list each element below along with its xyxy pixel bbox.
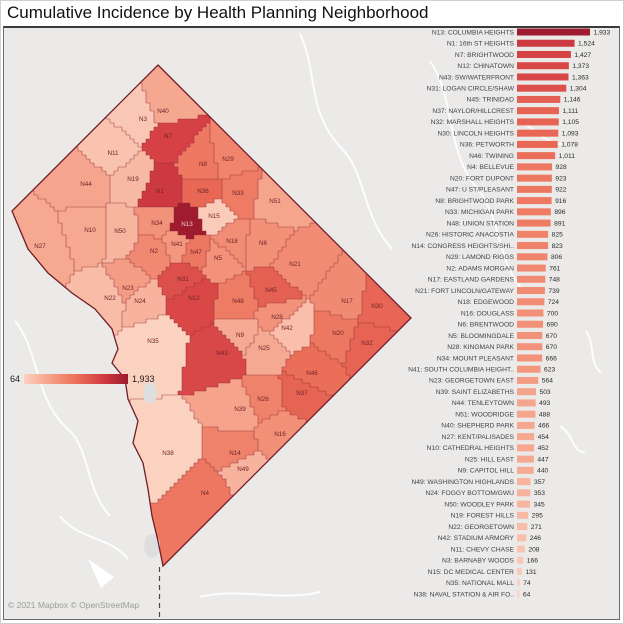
- bar-value: 724: [548, 299, 559, 306]
- bar-label: N47: U ST/PLEASANT: [446, 187, 514, 194]
- map-region-N51[interactable]: [254, 63, 414, 231]
- bar-label: N25: HILL EAST: [465, 456, 514, 463]
- bar-N47[interactable]: [517, 186, 552, 193]
- bar-value: 74: [523, 580, 531, 587]
- bar-N37[interactable]: [517, 107, 559, 114]
- bar-N33[interactable]: [517, 208, 551, 215]
- bar-N4[interactable]: [517, 163, 552, 170]
- bar-value: 1,373: [572, 63, 589, 70]
- bar-label: N2: ADAMS MORGAN: [446, 265, 514, 272]
- bar-N20[interactable]: [517, 175, 552, 182]
- map-label-N30: N30: [371, 303, 383, 310]
- bar-value: 503: [539, 389, 550, 396]
- bar-N40[interactable]: [517, 422, 535, 429]
- bar-value: 1,111: [562, 108, 578, 115]
- map-label-N5: N5: [214, 255, 223, 262]
- bar-label: N18: EDGEWOOD: [458, 299, 515, 306]
- map-label-N19: N19: [127, 176, 139, 183]
- map-label-N37: N37: [296, 390, 308, 397]
- map-label-N4: N4: [201, 490, 210, 497]
- map-label-N20: N20: [332, 330, 344, 337]
- bar-label: N32: MARSHALL HEIGHTS: [431, 119, 515, 126]
- bar-value: 466: [538, 423, 549, 430]
- map-label-N9: N9: [236, 332, 245, 339]
- bar-label: N28: KINGMAN PARK: [447, 344, 514, 351]
- bar-N48[interactable]: [517, 220, 551, 227]
- map-label-N12: N12: [188, 295, 200, 302]
- river-island: [143, 382, 157, 404]
- map-label-N29: N29: [222, 156, 234, 163]
- bar-N41[interactable]: [517, 366, 541, 373]
- bar-label: N33: MICHIGAN PARK: [445, 209, 515, 216]
- map-label-N13: N13: [181, 221, 193, 228]
- bar-N26[interactable]: [517, 231, 548, 238]
- bar-N31[interactable]: [517, 85, 566, 92]
- bar-label: N40: SHEPHERD PARK: [441, 423, 514, 430]
- bar-label: N19: FOREST HILLS: [451, 513, 515, 520]
- bar-label: N50: WOODLEY PARK: [444, 501, 514, 508]
- bar-N46[interactable]: [517, 152, 555, 159]
- bar-N19[interactable]: [517, 512, 528, 519]
- map-label-N3: N3: [139, 116, 148, 123]
- map-label-N22: N22: [104, 295, 116, 302]
- bar-label: N21: FORT LINCOLN/GATEWAY: [415, 288, 514, 295]
- map-label-N42: N42: [281, 325, 293, 332]
- map-label-N28: N28: [271, 314, 283, 321]
- bar-value: 64: [523, 591, 531, 598]
- bar-N49[interactable]: [517, 478, 530, 485]
- bar-N1[interactable]: [517, 40, 575, 47]
- bar-value: 1,933: [594, 29, 611, 36]
- bar-N16[interactable]: [517, 310, 543, 317]
- map-label-N39: N39: [234, 406, 246, 413]
- map-label-N23: N23: [122, 285, 134, 292]
- bar-N6[interactable]: [517, 321, 543, 328]
- map-label-N41: N41: [171, 241, 183, 248]
- bar-N11[interactable]: [517, 546, 525, 553]
- map-label-N35: N35: [147, 338, 159, 345]
- bar-N10[interactable]: [517, 444, 534, 451]
- bar-N12[interactable]: [517, 62, 569, 69]
- map-label-N15: N15: [208, 213, 220, 220]
- bar-label: N41: SOUTH COLUMBIA HEIGHT..: [408, 367, 514, 374]
- bar-N13[interactable]: [517, 29, 590, 36]
- bar-value: 623: [544, 367, 555, 374]
- bar-N9[interactable]: [517, 467, 534, 474]
- bar-value: 1,363: [572, 74, 589, 81]
- bar-N29[interactable]: [517, 253, 547, 260]
- bar-value: 1,093: [562, 130, 579, 137]
- bar-value: 447: [537, 456, 548, 463]
- map-attribution: © 2021 Mapbox © OpenStreetMap: [8, 600, 139, 610]
- bar-value: 666: [546, 355, 557, 362]
- bar-label: N39: SAINT ELIZABETHS: [436, 389, 515, 396]
- bar-value: 690: [547, 322, 558, 329]
- bar-label: N4: BELLEVUE: [467, 164, 514, 171]
- bar-value: 488: [539, 411, 550, 418]
- map-label-N48: N48: [232, 298, 244, 305]
- bar-N27[interactable]: [517, 433, 534, 440]
- bar-N39[interactable]: [517, 388, 536, 395]
- bar-value: 823: [552, 243, 563, 250]
- bar-N43[interactable]: [517, 73, 568, 80]
- legend-max-label: 1,933: [132, 374, 155, 384]
- bar-value: 345: [534, 501, 545, 508]
- bar-value: 1,078: [561, 142, 578, 149]
- bar-label: N10: CATHEDRAL HEIGHTS: [427, 445, 515, 452]
- bar-label: N29: LAMOND RIGGS: [446, 254, 515, 261]
- bar-label: N44: TENLEYTOWN: [452, 400, 514, 407]
- bar-N32[interactable]: [517, 118, 559, 125]
- map-label-N11: N11: [107, 150, 119, 157]
- bar-value: 493: [539, 400, 550, 407]
- map-label-N8: N8: [199, 161, 208, 168]
- map-label-N2: N2: [150, 248, 159, 255]
- bar-label: N46: TWINING: [469, 153, 514, 160]
- bar-N38[interactable]: [517, 591, 519, 598]
- bar-value: 1,427: [574, 52, 591, 59]
- bar-value: 896: [554, 209, 565, 216]
- bar-N34[interactable]: [517, 354, 542, 361]
- bar-N42[interactable]: [517, 534, 526, 541]
- bar-value: 454: [538, 434, 549, 441]
- bar-value: 700: [547, 310, 558, 317]
- bar-label: N48: UNION STATION: [447, 220, 515, 227]
- bar-label: N42: STADIUM ARMORY: [438, 535, 515, 542]
- bar-value: 670: [546, 333, 557, 340]
- bar-label: N20: FORT DUPONT: [450, 175, 514, 182]
- legend-gradient-bar: [24, 374, 128, 384]
- map-label-N47: N47: [190, 249, 202, 256]
- bar-N25[interactable]: [517, 456, 534, 463]
- bar-value: 246: [530, 535, 541, 542]
- bar-N5[interactable]: [517, 332, 542, 339]
- bar-N18[interactable]: [517, 298, 544, 305]
- bar-N51[interactable]: [517, 411, 535, 418]
- map-label-N51: N51: [269, 198, 281, 205]
- bar-label: N6: BRENTWOOD: [458, 322, 515, 329]
- bar-value: 1,105: [562, 119, 579, 126]
- bar-label: N17: EASTLAND GARDENS: [428, 277, 515, 284]
- bar-label: N30: LINCOLN HEIGHTS: [437, 130, 514, 137]
- bar-value: 922: [555, 187, 566, 194]
- bar-value: 353: [534, 490, 545, 497]
- map-label-N33: N33: [232, 190, 244, 197]
- bar-label: N34: MOUNT PLEASANT: [437, 355, 514, 362]
- page-title: Cumulative Incidence by Health Planning …: [7, 3, 429, 23]
- bar-label: N27: KENT/PALISADES: [442, 434, 515, 441]
- bar-label: N16: DOUGLASS: [461, 310, 515, 317]
- bar-value: 440: [537, 468, 548, 475]
- map-label-N10: N10: [84, 227, 96, 234]
- map-label-N1: N1: [156, 188, 165, 195]
- map-chart-canvas: N13N1N7N12N43N31N45N37N32N30N36N46N4N20N…: [4, 28, 619, 620]
- bar-N45[interactable]: [517, 96, 560, 103]
- map-label-N26: N26: [257, 396, 269, 403]
- bar-chart: N13: COLUMBIA HEIGHTS1,933N1: 16th ST HE…: [408, 29, 610, 599]
- map-label-N45: N45: [265, 287, 277, 294]
- bar-label: N11: CHEVY CHASE: [451, 546, 515, 553]
- map-label-N44: N44: [80, 181, 92, 188]
- bar-value: 564: [542, 378, 553, 385]
- bar-value: 452: [538, 445, 549, 452]
- map-region-N30[interactable]: [358, 171, 414, 335]
- map-label-N21: N21: [289, 261, 301, 268]
- bar-label: N43: SW/WATERFRONT: [439, 74, 514, 81]
- color-legend: 64 1,933: [10, 374, 155, 384]
- bar-value: 928: [556, 164, 567, 171]
- bar-label: N8: BRIGHTWOOD PARK: [435, 198, 514, 205]
- bar-label: N38: NAVAL STATION & AIR FO..: [414, 591, 514, 598]
- bar-N23[interactable]: [517, 377, 538, 384]
- map-label-N40: N40: [157, 108, 169, 115]
- bar-N7[interactable]: [517, 51, 571, 58]
- bar-value: 1,304: [570, 86, 587, 93]
- bar-value: 923: [555, 175, 566, 182]
- bar-value: 1,011: [559, 153, 576, 160]
- bar-label: N51: WOODRIDGE: [455, 411, 514, 418]
- bar-value: 825: [552, 232, 563, 239]
- map-label-N24: N24: [134, 298, 146, 305]
- choropleth-regions: [10, 63, 414, 571]
- map-label-N16: N16: [274, 431, 286, 438]
- bar-N44[interactable]: [517, 399, 536, 406]
- bar-value: 739: [548, 288, 559, 295]
- map-label-N27: N27: [34, 243, 46, 250]
- bar-label: N35: NATIONAL MALL: [446, 580, 514, 587]
- bar-label: N31: LOGAN CIRCLE/SHAW: [427, 86, 515, 93]
- map-region-N32[interactable]: [342, 323, 414, 467]
- bar-N22[interactable]: [517, 523, 527, 530]
- bar-label: N24: FOGGY BOTTOM/GWU: [425, 490, 514, 497]
- bar-label: N14: CONGRESS HEIGHTS/SHI..: [411, 243, 514, 250]
- bar-label: N49: WASHINGTON HIGHLANDS: [411, 479, 514, 486]
- map-label-N18: N18: [226, 238, 238, 245]
- bar-value: 131: [525, 569, 536, 576]
- bar-N36[interactable]: [517, 141, 558, 148]
- bar-N24[interactable]: [517, 489, 530, 496]
- bar-value: 1,524: [578, 41, 595, 48]
- map-label-N7: N7: [164, 133, 173, 140]
- bar-value: 271: [531, 524, 542, 531]
- bar-label: N13: COLUMBIA HEIGHTS: [432, 29, 515, 36]
- bar-N35[interactable]: [517, 579, 520, 586]
- bar-value: 208: [528, 546, 539, 553]
- bar-N14[interactable]: [517, 242, 548, 249]
- map-label-N43: N43: [216, 350, 228, 357]
- bar-label: N37: NAYLOR/HILLCREST: [432, 108, 514, 115]
- bar-N28[interactable]: [517, 343, 542, 350]
- bar-value: 916: [555, 198, 566, 205]
- map-label-N36: N36: [197, 188, 209, 195]
- bar-N2[interactable]: [517, 265, 546, 272]
- bar-value: 761: [549, 265, 560, 272]
- bar-label: N15: DC MEDICAL CENTER: [428, 569, 515, 576]
- bar-N3[interactable]: [517, 557, 523, 564]
- bar-label: N9: CAPITOL HILL: [458, 468, 515, 475]
- map-chart-panel: N13N1N7N12N43N31N45N37N32N30N36N46N4N20N…: [3, 26, 620, 620]
- bar-value: 806: [551, 254, 562, 261]
- map-label-N14: N14: [229, 450, 241, 457]
- bar-label: N3: BARNABY WOODS: [442, 558, 515, 565]
- bar-label: N23: GEORGETOWN EAST: [429, 378, 514, 385]
- map-label-N50: N50: [114, 228, 126, 235]
- bar-value: 357: [534, 479, 545, 486]
- bar-N50[interactable]: [517, 501, 530, 508]
- bar-label: N1: 16th ST HEIGHTS: [447, 41, 515, 48]
- bar-label: N5: BLOOMINGDALE: [448, 333, 514, 340]
- map-label-N34: N34: [151, 220, 163, 227]
- bar-value: 748: [549, 277, 560, 284]
- bar-N17[interactable]: [517, 276, 545, 283]
- bar-label: N45: TRINIDAD: [467, 97, 515, 104]
- map-label-N46: N46: [306, 370, 318, 377]
- bar-label: N12: CHINATOWN: [457, 63, 514, 70]
- bar-value: 1,146: [564, 97, 581, 104]
- map-label-N32: N32: [361, 340, 373, 347]
- bar-N30[interactable]: [517, 130, 558, 137]
- map-label-N25: N25: [258, 345, 270, 352]
- map-label-N17: N17: [341, 298, 353, 305]
- bar-value: 166: [527, 558, 538, 565]
- bar-label: N7: BRIGHTWOOD: [455, 52, 514, 59]
- bar-value: 295: [532, 513, 543, 520]
- map-label-N38: N38: [162, 450, 174, 457]
- map-label-N49: N49: [237, 466, 249, 473]
- map-label-N6: N6: [259, 240, 268, 247]
- bar-label: N22: GEORGETOWN: [448, 524, 514, 531]
- bar-value: 670: [546, 344, 557, 351]
- map-label-N31: N31: [177, 276, 189, 283]
- bar-N21[interactable]: [517, 287, 545, 294]
- legend-min-label: 64: [10, 374, 20, 384]
- bar-N15[interactable]: [517, 568, 522, 575]
- bar-N8[interactable]: [517, 197, 552, 204]
- bar-label: N36: PETWORTH: [460, 142, 514, 149]
- bar-value: 891: [554, 220, 565, 227]
- bar-label: N26: HISTORIC ANACOSTIA: [426, 232, 514, 239]
